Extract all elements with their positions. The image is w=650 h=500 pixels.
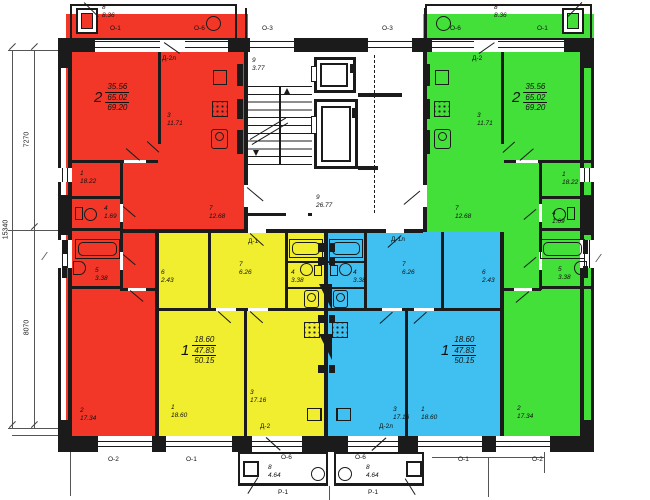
room-label: 43.38 xyxy=(353,269,366,286)
apartment-summary-blue: 1 18.6047.8350.15 xyxy=(441,335,476,366)
window-code: О-2 xyxy=(108,457,119,464)
stove xyxy=(332,322,348,338)
dimension-line xyxy=(12,50,13,428)
bathtub-inner xyxy=(292,242,320,255)
wall xyxy=(501,52,504,144)
window-o1 xyxy=(166,436,232,452)
kitchen-sink-bowl xyxy=(438,132,447,141)
door-opening xyxy=(474,38,498,52)
dimension-upper: 7270 xyxy=(24,120,31,160)
window-o3 xyxy=(250,38,294,52)
balcony-circle xyxy=(436,16,451,31)
vent-box xyxy=(336,408,351,421)
room-label: 118.22 xyxy=(562,171,578,188)
bathtub-inner xyxy=(543,242,582,256)
fridge xyxy=(213,70,227,85)
window-o2 xyxy=(98,436,152,452)
extension-line xyxy=(8,428,60,429)
toilet-cistern xyxy=(314,265,322,276)
vent-block xyxy=(583,266,588,278)
door-code: Д-2л xyxy=(379,424,393,431)
door-opening xyxy=(216,308,236,311)
elevator-door xyxy=(311,66,317,82)
wall xyxy=(358,166,378,170)
stove xyxy=(304,322,320,338)
porch-box xyxy=(406,461,422,477)
balcony-label: 88.36 xyxy=(102,4,115,21)
wall xyxy=(327,287,364,289)
door-opening xyxy=(514,288,532,291)
counterweight xyxy=(352,108,357,118)
wall xyxy=(441,232,444,310)
room-label: 76.26 xyxy=(402,261,415,278)
porch-label: 84.64 xyxy=(268,464,281,481)
door-code: Д-2 xyxy=(260,424,270,431)
room-label: 41.69 xyxy=(104,205,117,222)
door-code: Д-1л xyxy=(391,237,405,244)
shaft-block xyxy=(329,365,335,373)
entry-door-leaf xyxy=(404,191,421,206)
window-o2 xyxy=(496,436,550,452)
window-code: О-6 xyxy=(194,26,205,33)
hall-wall xyxy=(120,229,423,233)
room-label: 217.34 xyxy=(517,405,533,422)
wall xyxy=(159,308,325,311)
wall-stub xyxy=(245,8,247,38)
porch-code: Р-1 xyxy=(368,490,378,497)
apartment-summary-green: 2 35.5665.0269.20 xyxy=(512,82,547,113)
balcony-label: 88.36 xyxy=(494,4,507,21)
stair-label: 93.77 xyxy=(252,57,265,74)
wall xyxy=(580,420,594,452)
window xyxy=(580,168,594,182)
wall xyxy=(542,228,592,231)
wall xyxy=(542,286,592,289)
extension-line xyxy=(488,457,489,497)
room-label: 712.68 xyxy=(455,205,471,222)
porch-circle xyxy=(311,467,325,481)
extension-line xyxy=(329,486,330,500)
wall xyxy=(72,196,120,199)
wash-basin xyxy=(73,261,86,275)
wall xyxy=(58,38,72,68)
extension-line xyxy=(70,452,71,496)
room-label: 53.38 xyxy=(558,266,571,283)
room-label: 62.43 xyxy=(482,269,495,286)
porch-circle xyxy=(338,467,352,481)
room-label: 317.16 xyxy=(393,406,409,423)
window-code: О-1 xyxy=(458,457,469,464)
shaft-block xyxy=(318,257,324,265)
shaft-boundary-dashed xyxy=(374,55,375,213)
window-code: О-6 xyxy=(281,455,292,462)
window-o6 xyxy=(185,38,228,52)
wall xyxy=(228,38,250,52)
vent-box xyxy=(307,408,322,421)
room-label: 53.38 xyxy=(95,267,108,284)
dimension-line xyxy=(34,50,35,428)
toilet-cistern xyxy=(330,265,338,276)
door-opening xyxy=(414,308,434,311)
window-code: О-2 xyxy=(532,457,543,464)
shaft-block xyxy=(237,99,243,119)
shaft-block xyxy=(424,99,430,119)
shaft-block xyxy=(318,315,324,323)
door-opening xyxy=(248,308,268,311)
shaft-block xyxy=(329,315,335,323)
window-code: О-1 xyxy=(110,26,121,33)
window xyxy=(58,168,72,182)
party-wall xyxy=(155,232,159,452)
toilet-bowl xyxy=(84,208,97,221)
break-mark xyxy=(41,252,55,260)
door-code: Д-2 xyxy=(472,56,482,63)
window-o1 xyxy=(95,38,160,52)
kitchen-sink-bowl xyxy=(307,293,316,302)
counterweight xyxy=(350,64,355,73)
wall xyxy=(294,38,368,52)
shaft-block xyxy=(424,64,430,86)
window-code: О-6 xyxy=(450,26,461,33)
room-label: 62.43 xyxy=(161,269,174,286)
shaft-block xyxy=(329,243,335,252)
bathtub-inner xyxy=(332,242,360,255)
room-label: 311.71 xyxy=(167,112,183,129)
window-code: О-3 xyxy=(382,26,393,33)
window-o1 xyxy=(498,38,564,52)
door-opening xyxy=(286,213,308,216)
vent-block xyxy=(62,240,67,254)
wall xyxy=(358,93,402,97)
room-label: 712.68 xyxy=(209,205,225,222)
door-opening xyxy=(386,229,404,233)
porch-label: 84.64 xyxy=(366,464,379,481)
door-code: Д-2л xyxy=(162,56,176,63)
wall xyxy=(244,311,247,436)
extension-line xyxy=(12,435,58,436)
vent-block xyxy=(62,200,67,214)
party-wall xyxy=(500,232,504,452)
door-opening xyxy=(124,160,146,163)
room-label: 41.69 xyxy=(552,210,565,227)
stair-arrow-down xyxy=(253,150,259,156)
wall xyxy=(72,228,120,231)
window-o3 xyxy=(368,38,412,52)
wall xyxy=(120,163,123,290)
shaft-block xyxy=(237,64,243,86)
window-code: О-1 xyxy=(537,26,548,33)
dimension-lower: 8070 xyxy=(24,308,31,348)
wall xyxy=(398,436,418,452)
kitchen-sink-bowl xyxy=(215,132,224,141)
room-label: 311.71 xyxy=(477,112,493,129)
vent-block xyxy=(62,266,67,278)
window-o6 xyxy=(252,436,302,452)
porch-code: Р-1 xyxy=(278,490,288,497)
door-opening xyxy=(539,204,542,222)
window-code: О-1 xyxy=(186,457,197,464)
shaft-triangle xyxy=(319,334,332,360)
elevator-cab xyxy=(321,106,351,162)
fridge xyxy=(435,70,449,85)
shaft-block xyxy=(329,257,335,265)
shaft-block xyxy=(237,130,243,154)
shaft-block xyxy=(424,130,430,154)
room-label: 118.60 xyxy=(421,406,437,423)
entry-door-leaf xyxy=(247,187,264,202)
window-o6 xyxy=(432,38,474,52)
wall xyxy=(285,232,288,310)
bathtub-inner xyxy=(78,242,117,256)
stove xyxy=(434,101,450,117)
window-code: О-3 xyxy=(262,26,273,33)
wall xyxy=(539,163,542,290)
shaft-block xyxy=(318,365,324,373)
wall xyxy=(208,232,211,310)
stair-arrow-up xyxy=(284,88,290,94)
wall xyxy=(232,436,252,452)
stove xyxy=(212,101,228,117)
porch-box xyxy=(243,461,259,477)
room-label: 118.22 xyxy=(80,170,96,187)
wall xyxy=(542,196,592,199)
shaft-triangle xyxy=(319,284,332,310)
toilet-cistern xyxy=(567,207,575,220)
wall xyxy=(580,38,594,68)
wall xyxy=(58,420,72,452)
toilet-cistern xyxy=(75,207,83,220)
room-label: 43.38 xyxy=(291,269,304,286)
hall-label: 926.77 xyxy=(316,194,332,211)
window-code: О-6 xyxy=(355,455,366,462)
window-o1 xyxy=(418,436,482,452)
balcony-circle xyxy=(206,16,221,31)
elevator-door xyxy=(311,116,317,134)
room-label: 76.26 xyxy=(239,261,252,278)
vent-block xyxy=(583,200,588,214)
apartment-summary-red: 2 35.5665.0269.20 xyxy=(94,82,129,113)
door-opening xyxy=(382,308,402,311)
wall xyxy=(482,436,496,452)
shaft-block xyxy=(318,243,324,252)
floor-plan: 7270 8070 15340 xyxy=(0,0,650,500)
room-label: 217.34 xyxy=(80,407,96,424)
kitchen-sink-bowl xyxy=(336,293,345,302)
wall xyxy=(158,52,161,144)
break-mark xyxy=(595,254,609,262)
vent-block xyxy=(583,240,588,254)
apartment-summary-yellow: 1 18.6047.8350.15 xyxy=(181,335,216,366)
elevator-cab xyxy=(320,63,348,87)
dimension-total: 15340 xyxy=(3,210,10,250)
wall xyxy=(412,38,432,52)
wall xyxy=(72,286,120,289)
room-label: 317.16 xyxy=(250,389,266,406)
room-label: 118.60 xyxy=(171,404,187,421)
toilet-bowl xyxy=(339,263,352,276)
door-code: Д-1 xyxy=(248,239,258,246)
door-opening xyxy=(423,185,427,207)
